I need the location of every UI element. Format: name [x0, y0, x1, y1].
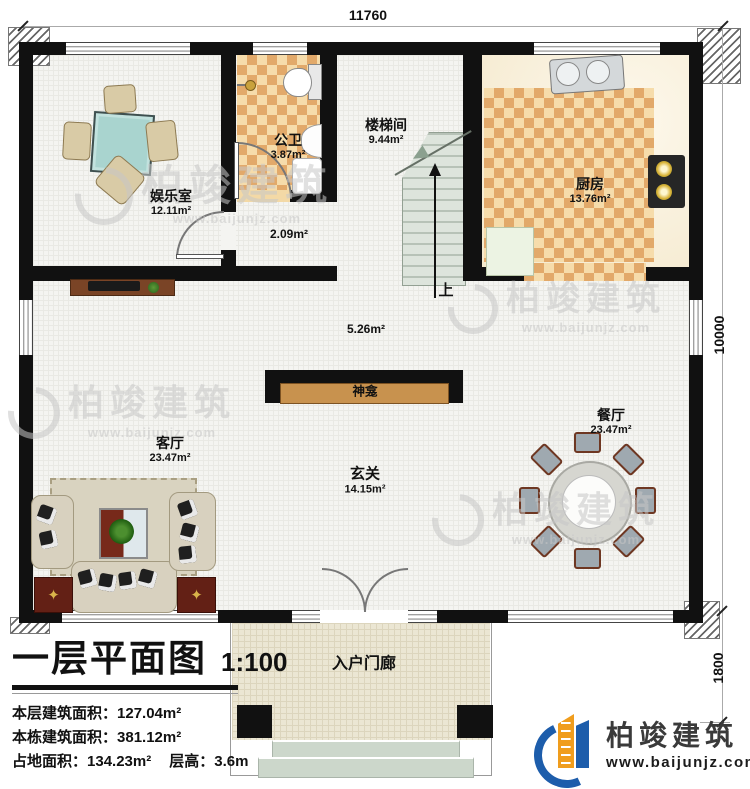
porch-column-right: [457, 705, 493, 738]
dimension-top-value: 11760: [318, 7, 418, 23]
stat-building-area: 本栋建筑面积：381.12m²: [12, 726, 288, 750]
dining-chair: [635, 487, 656, 514]
pillow: [98, 573, 118, 593]
console-plant: [148, 282, 159, 293]
game-chair-left: [62, 121, 92, 160]
room-label-porch: 入户门廊: [332, 654, 396, 673]
room-label-foyer: 玄关 14.15m²: [345, 465, 386, 496]
room-label-stairwell: 楼梯间 9.44m²: [365, 117, 407, 147]
wall-kitchen-bottom-right: [646, 267, 703, 281]
pillow: [178, 545, 197, 564]
room-label-entertainment: 娱乐室 12.11m²: [150, 188, 192, 218]
dining-chair: [519, 487, 540, 514]
pillow: [179, 522, 200, 543]
stair-direction-arrowhead: [429, 163, 441, 176]
area-label-corridor: 5.26m²: [347, 322, 385, 336]
window-bottom-dining: [508, 610, 673, 623]
company-logo: 柏竣建筑 www.baijunjz.com: [534, 712, 750, 780]
bath-faucet-knob: [245, 80, 256, 91]
pillow: [38, 529, 58, 549]
pillow: [36, 504, 58, 526]
title-rule: [12, 685, 238, 690]
porch-step-2: [258, 757, 474, 778]
stat-floor-area: 本层建筑面积：127.04m²: [12, 702, 288, 726]
game-chair-top: [103, 84, 137, 114]
floor-plan: 11760 10000 1800 ✦ ✦: [0, 0, 750, 789]
stove-burner-top: [656, 161, 672, 177]
sofa-left: [31, 495, 74, 569]
dimension-line-top: [22, 26, 723, 27]
shrine-label: 神龛: [352, 385, 377, 400]
company-website: www.baijunjz.com: [606, 754, 750, 771]
pillow: [137, 568, 158, 589]
stove-burner-bottom: [656, 184, 672, 200]
kitchen-cabinet: [486, 227, 534, 276]
title-block: 一层平面图 1:100 本层建筑面积：127.04m² 本栋建筑面积：381.1…: [12, 628, 288, 774]
plan-title: 一层平面图: [12, 628, 207, 682]
room-label-bathroom: 公卫 3.87m²: [271, 132, 306, 162]
sidelight-right: [408, 610, 437, 623]
dimension-side-value: 10000: [711, 313, 727, 357]
window-top-kitchen: [534, 42, 660, 55]
kitchen-door-threshold: [524, 263, 646, 281]
entertainment-door-leaf: [176, 254, 224, 259]
window-top-entertainment: [66, 42, 190, 55]
dining-chair: [574, 548, 601, 569]
bath-cabinet: [292, 158, 322, 194]
company-logo-icon: [534, 712, 596, 780]
side-table-left: ✦: [34, 577, 73, 613]
title-rule-thin: [12, 693, 238, 694]
company-name: 柏竣建筑: [606, 722, 750, 750]
coffee-table-plant: [109, 519, 134, 544]
game-chair-right: [145, 120, 179, 163]
pillow: [77, 568, 98, 589]
wall-bathroom-right: [320, 55, 337, 202]
side-table-right: ✦: [177, 577, 216, 613]
room-label-kitchen: 厨房 13.76m²: [570, 176, 611, 206]
hatch-top-right: [697, 28, 741, 84]
tv: [88, 281, 140, 291]
sofa-main: [71, 561, 177, 613]
window-top-bathroom: [253, 42, 307, 55]
stair-up-label: 上: [438, 282, 453, 300]
pillow: [118, 571, 137, 590]
sofa-right: [169, 492, 216, 571]
room-label-dining: 餐厅 23.47m²: [591, 407, 632, 437]
sidelight-left: [292, 610, 320, 623]
stair-direction-line: [434, 176, 436, 298]
dimension-porch-value: 1800: [710, 650, 724, 686]
stat-footprint: 占地面积：134.23m²层高：3.6m: [12, 750, 288, 774]
room-label-living: 客厅 23.47m²: [150, 435, 191, 465]
toilet-bowl: [283, 68, 312, 97]
area-label-hallway: 2.09m²: [270, 227, 308, 241]
wall-stair-kitchen: [463, 42, 482, 281]
window-left-living: [19, 300, 33, 355]
dining-table-top: [562, 475, 616, 529]
window-right-dining: [689, 300, 703, 355]
pillow: [177, 499, 199, 521]
plan-scale: 1:100: [221, 647, 288, 678]
dimension-line-right: [722, 26, 723, 723]
bathroom-door-leaf: [234, 142, 239, 199]
